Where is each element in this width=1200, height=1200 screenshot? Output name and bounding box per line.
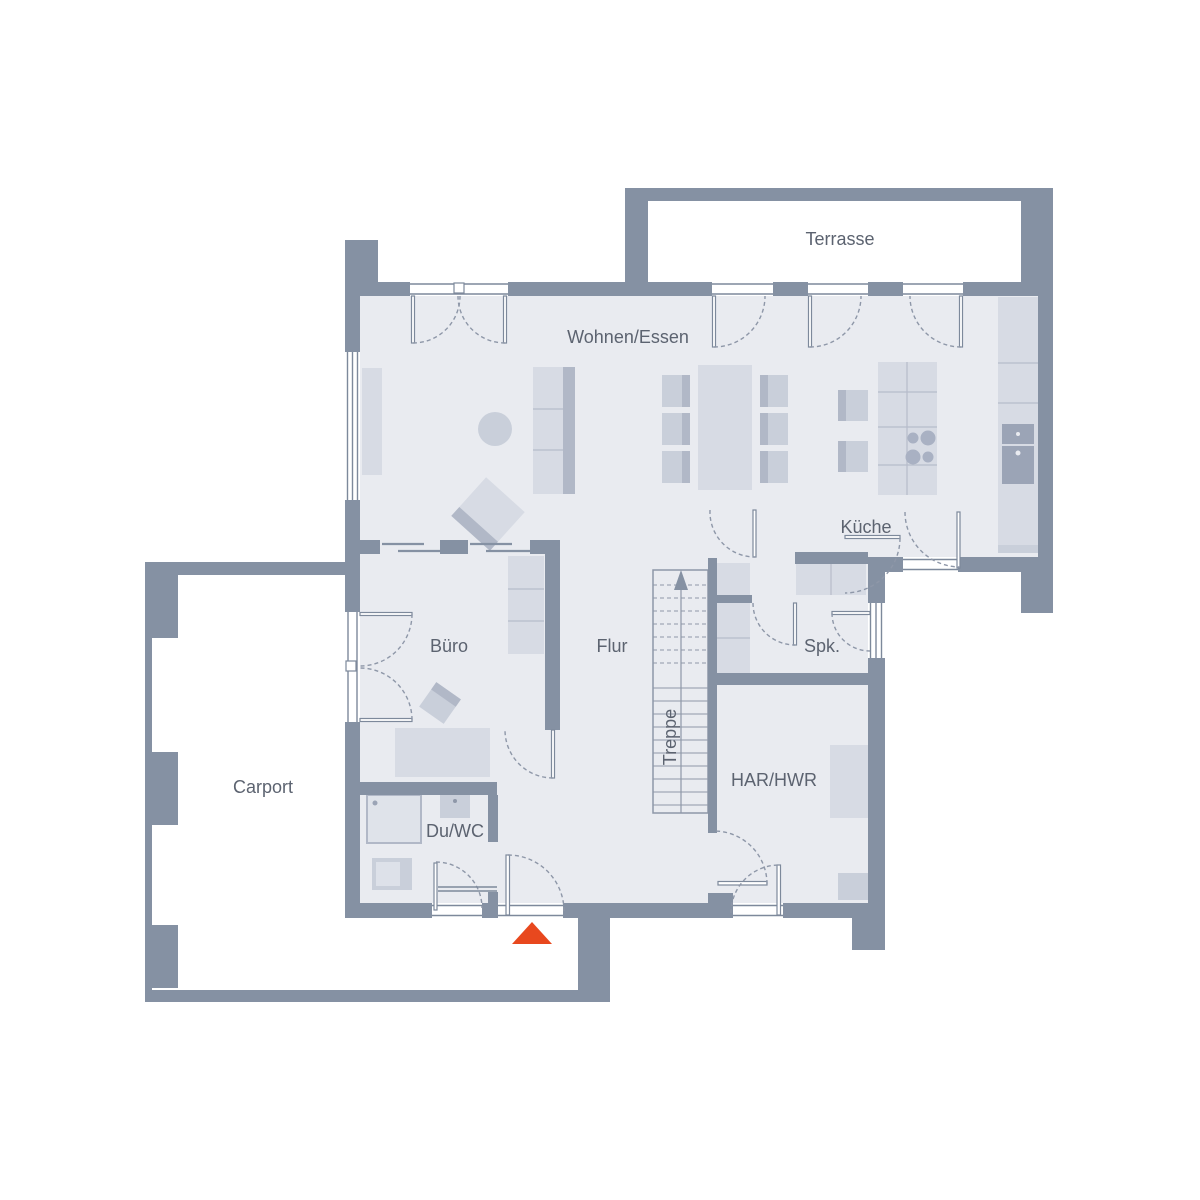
terrace-wall (625, 188, 1053, 201)
utility-cabinet (838, 873, 868, 900)
room-label-du-wc: Du/WC (426, 821, 484, 841)
kitchen-island (878, 362, 937, 495)
room-label-carport: Carport (233, 777, 293, 797)
room-label-flur: Flur (597, 636, 628, 656)
coffee-table (478, 412, 512, 446)
dining-table (698, 365, 752, 490)
dining-furniture (662, 365, 788, 490)
room-label-wohnen-essen: Wohnen/Essen (567, 327, 689, 347)
kitchen-cabinets (796, 563, 866, 595)
carport-post (152, 573, 178, 638)
room-label-har-hwr: HAR/HWR (731, 770, 817, 790)
washer (830, 745, 868, 818)
toilet (440, 794, 470, 818)
office-wardrobe (508, 556, 544, 654)
room-label-treppe: Treppe (660, 709, 680, 765)
sofa (533, 367, 563, 494)
room-label-terrasse: Terrasse (805, 229, 874, 249)
room-label-buero: Büro (430, 636, 468, 656)
pantry-shelf (717, 563, 750, 673)
carport-post (152, 752, 178, 825)
floor-plan-canvas: Terrasse Wohnen/Essen Küche Büro Flur Sp… (0, 0, 1200, 1200)
window (345, 352, 360, 500)
sofa-backrest (563, 367, 575, 494)
entrance-arrow-icon (512, 922, 552, 944)
room-label-kueche: Küche (840, 517, 891, 537)
room-label-spk: Spk. (804, 636, 840, 656)
tv-sideboard (362, 368, 382, 475)
desk (395, 728, 490, 777)
kitchen-counter (998, 297, 1038, 553)
stairs (653, 570, 708, 813)
carport-post (152, 925, 178, 988)
